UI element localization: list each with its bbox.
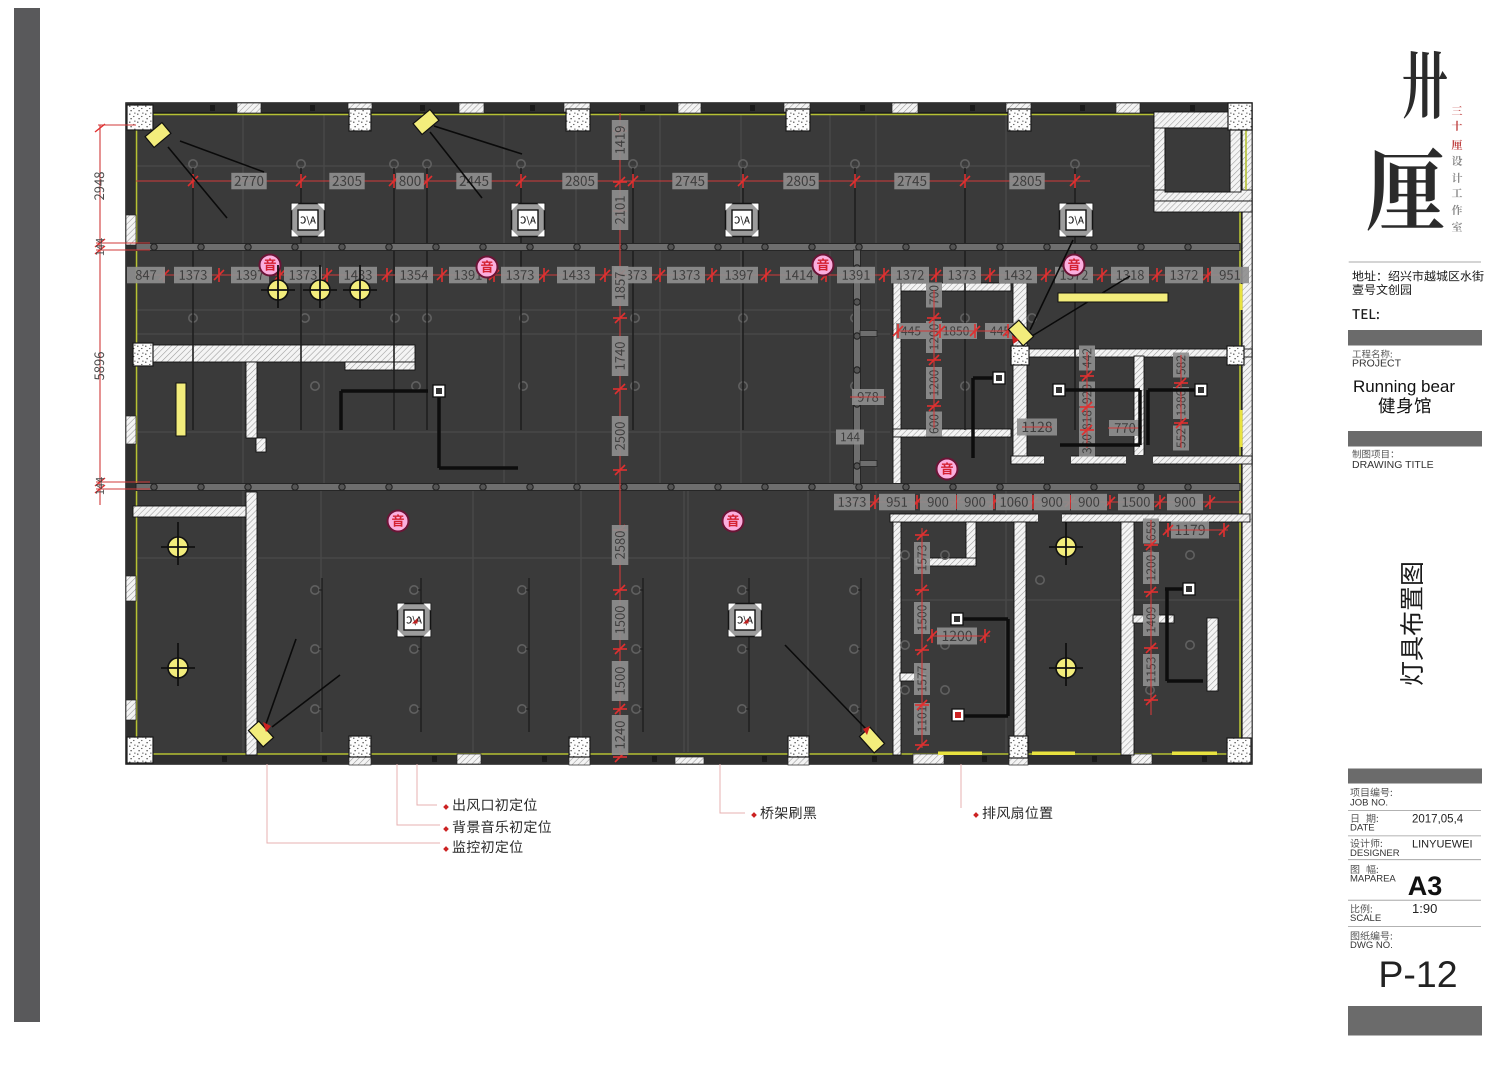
svg-text:DESIGNER: DESIGNER: [1350, 848, 1400, 859]
svg-text:JOB NO.: JOB NO.: [1350, 798, 1388, 809]
svg-text:1:90: 1:90: [1412, 901, 1437, 916]
svg-text:Running bear: Running bear: [1353, 377, 1455, 396]
svg-text:2017,05,4: 2017,05,4: [1412, 814, 1464, 826]
svg-text:A3: A3: [1408, 871, 1443, 901]
svg-text:DWG NO.: DWG NO.: [1350, 940, 1393, 951]
svg-text:DRAWING TITLE: DRAWING TITLE: [1352, 459, 1434, 471]
svg-text:PROJECT: PROJECT: [1352, 358, 1402, 370]
svg-text:SCALE: SCALE: [1350, 913, 1381, 924]
svg-text:P-12: P-12: [1378, 953, 1457, 995]
svg-text:DATE: DATE: [1350, 823, 1375, 834]
svg-text:MAPAREA: MAPAREA: [1350, 874, 1396, 885]
svg-text:LINYUEWEI: LINYUEWEI: [1412, 839, 1473, 851]
